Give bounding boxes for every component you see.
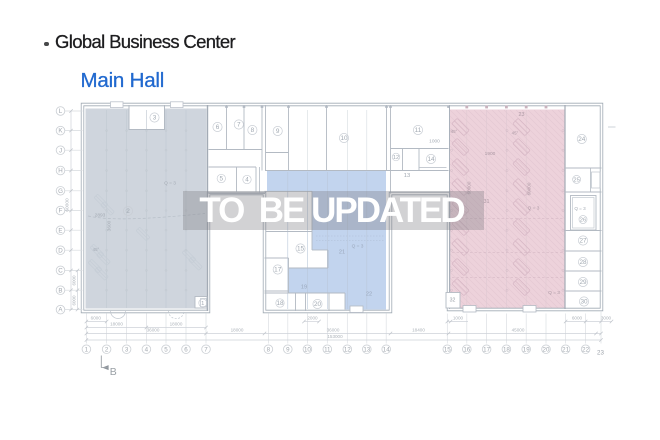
svg-text:19: 19 (301, 285, 307, 291)
svg-text:30: 30 (580, 299, 588, 306)
svg-text:2: 2 (126, 208, 130, 215)
svg-text:36000: 36000 (327, 328, 340, 333)
svg-text:17: 17 (274, 267, 282, 274)
svg-text:16: 16 (463, 346, 470, 353)
svg-text:45°: 45° (512, 131, 519, 136)
svg-text:22: 22 (366, 292, 372, 298)
svg-text:28: 28 (579, 259, 587, 266)
svg-text:J: J (59, 147, 62, 154)
svg-text:7: 7 (204, 346, 208, 353)
svg-text:45°: 45° (93, 247, 100, 252)
svg-text:6: 6 (184, 346, 188, 353)
svg-text:18400: 18400 (412, 328, 425, 333)
svg-text:29: 29 (579, 279, 587, 286)
svg-text:13: 13 (363, 346, 370, 353)
svg-text:11: 11 (415, 127, 422, 134)
svg-text:45000: 45000 (512, 328, 525, 333)
svg-text:25: 25 (573, 178, 579, 184)
svg-text:20: 20 (314, 301, 322, 308)
svg-text:18000: 18000 (110, 322, 123, 327)
svg-text:23: 23 (519, 112, 525, 118)
svg-text:8: 8 (267, 346, 271, 353)
svg-text:8: 8 (251, 127, 255, 134)
svg-text:D: D (58, 247, 63, 254)
svg-text:23: 23 (597, 350, 604, 357)
svg-text:Q = 3: Q = 3 (574, 206, 586, 211)
svg-text:1000: 1000 (453, 316, 464, 321)
svg-text:Q = 3: Q = 3 (528, 206, 540, 212)
svg-text:6000: 6000 (72, 275, 77, 286)
svg-text:Q = 3: Q = 3 (164, 181, 176, 187)
svg-text:6000: 6000 (72, 295, 77, 306)
svg-text:18: 18 (503, 346, 510, 353)
svg-text:18000: 18000 (231, 328, 244, 333)
svg-text:12: 12 (344, 346, 351, 353)
svg-text:7: 7 (237, 122, 241, 129)
svg-text:31: 31 (484, 199, 490, 205)
svg-text:15: 15 (444, 346, 451, 353)
svg-text:17: 17 (483, 346, 490, 353)
svg-text:Q = 3: Q = 3 (548, 290, 560, 296)
svg-text:14: 14 (383, 346, 390, 353)
svg-text:C: C (58, 268, 63, 275)
svg-text:2000: 2000 (307, 316, 318, 321)
svg-text:5: 5 (164, 346, 168, 353)
svg-text:36000: 36000 (147, 328, 160, 333)
svg-text:Q = 3: Q = 3 (352, 244, 364, 250)
svg-text:6000: 6000 (91, 316, 102, 321)
svg-text:F: F (59, 208, 63, 215)
svg-text:6: 6 (216, 124, 220, 131)
svg-text:12: 12 (393, 155, 399, 161)
svg-text:24: 24 (578, 136, 586, 143)
svg-text:32: 32 (450, 298, 456, 304)
svg-text:3: 3 (153, 115, 157, 122)
svg-text:B: B (110, 366, 117, 378)
svg-text:13: 13 (404, 173, 410, 179)
svg-text:21: 21 (562, 346, 569, 353)
svg-text:4: 4 (145, 346, 149, 353)
svg-text:2893: 2893 (95, 213, 106, 219)
svg-text:2: 2 (105, 346, 109, 353)
svg-text:4: 4 (245, 177, 249, 184)
svg-text:1900: 1900 (485, 151, 496, 157)
svg-text:3600: 3600 (107, 220, 113, 231)
svg-text:60000: 60000 (527, 182, 532, 195)
svg-text:18: 18 (276, 300, 284, 307)
svg-text:60000: 60000 (65, 198, 71, 212)
svg-text:E: E (58, 227, 62, 234)
svg-text:H: H (58, 168, 62, 175)
svg-text:9: 9 (286, 346, 290, 353)
svg-text:3: 3 (125, 346, 129, 353)
svg-text:5: 5 (220, 176, 224, 183)
svg-text:27: 27 (579, 238, 587, 245)
svg-text:B: B (58, 287, 62, 294)
svg-text:45°: 45° (451, 129, 458, 134)
svg-text:1: 1 (201, 301, 204, 307)
svg-text:1: 1 (85, 346, 89, 353)
svg-text:10: 10 (340, 135, 348, 142)
svg-text:18000: 18000 (170, 322, 183, 327)
svg-text:20: 20 (543, 346, 550, 353)
svg-text:3000: 3000 (601, 316, 612, 321)
svg-text:6000: 6000 (572, 316, 583, 321)
svg-text:21: 21 (339, 250, 345, 256)
svg-text:19: 19 (523, 346, 530, 353)
svg-text:9: 9 (276, 128, 280, 135)
svg-text:1000: 1000 (429, 139, 440, 145)
svg-text:L: L (59, 108, 63, 115)
svg-text:22: 22 (582, 346, 589, 353)
svg-text:153000: 153000 (327, 334, 343, 339)
svg-text:10: 10 (304, 346, 311, 353)
svg-text:15: 15 (297, 246, 305, 253)
svg-text:11: 11 (324, 346, 331, 353)
svg-text:14: 14 (427, 156, 435, 163)
svg-text:G: G (58, 188, 63, 195)
svg-text:26: 26 (580, 218, 586, 224)
